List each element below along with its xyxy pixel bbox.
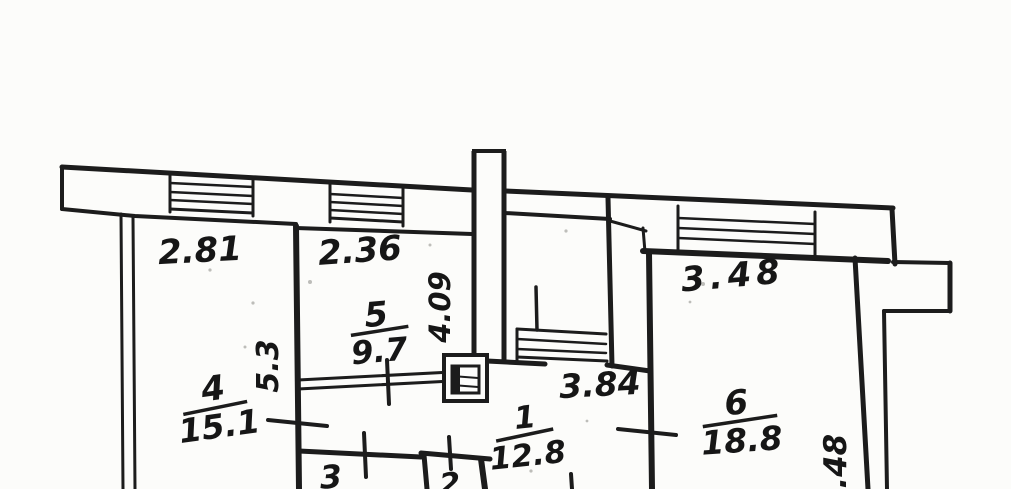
room-4-width-dimension: 2.81 <box>157 229 243 273</box>
room-1-label: 1 12.8 <box>484 396 568 478</box>
room-6-label: 6 18.8 <box>697 380 784 462</box>
floor-plan-drawing: 2.81 4 15.1 5.3 2.36 5 9.7 4.09 3.84 1 1… <box>0 0 1011 489</box>
room-6-depth-dimension: 5.48 <box>818 434 854 489</box>
room-5-depth-dimension: 4.09 <box>423 271 457 344</box>
room-4-area: 15.1 <box>176 401 262 451</box>
window-room-5 <box>330 182 403 226</box>
room-3-number: 3 <box>318 457 343 489</box>
room-2-number: 2 <box>438 466 461 489</box>
room-1-area: 12.8 <box>488 434 568 478</box>
room-5-area: 9.7 <box>350 329 411 372</box>
room-6-number: 6 <box>723 382 749 424</box>
center-bay <box>517 198 612 366</box>
floor-plan-scan: 2.81 4 15.1 5.3 2.36 5 9.7 4.09 3.84 1 1… <box>0 0 1011 489</box>
bay-width-dimension: 3.84 <box>558 363 641 406</box>
room-4-label: 4 15.1 <box>171 363 262 451</box>
room-6-area: 18.8 <box>700 418 784 463</box>
vent-shaft <box>472 149 506 362</box>
room-5-label: 5 9.7 <box>346 292 412 372</box>
room-1-number: 1 <box>512 399 537 437</box>
room-5-width-dimension: 2.36 <box>317 228 403 274</box>
window-room-6 <box>678 206 815 256</box>
vent-box <box>444 355 487 401</box>
room-4-depth-dimension: 5.3 <box>251 339 286 392</box>
room-4-number: 4 <box>198 368 228 411</box>
room-6-width-dimension: 3.48 <box>679 252 786 301</box>
